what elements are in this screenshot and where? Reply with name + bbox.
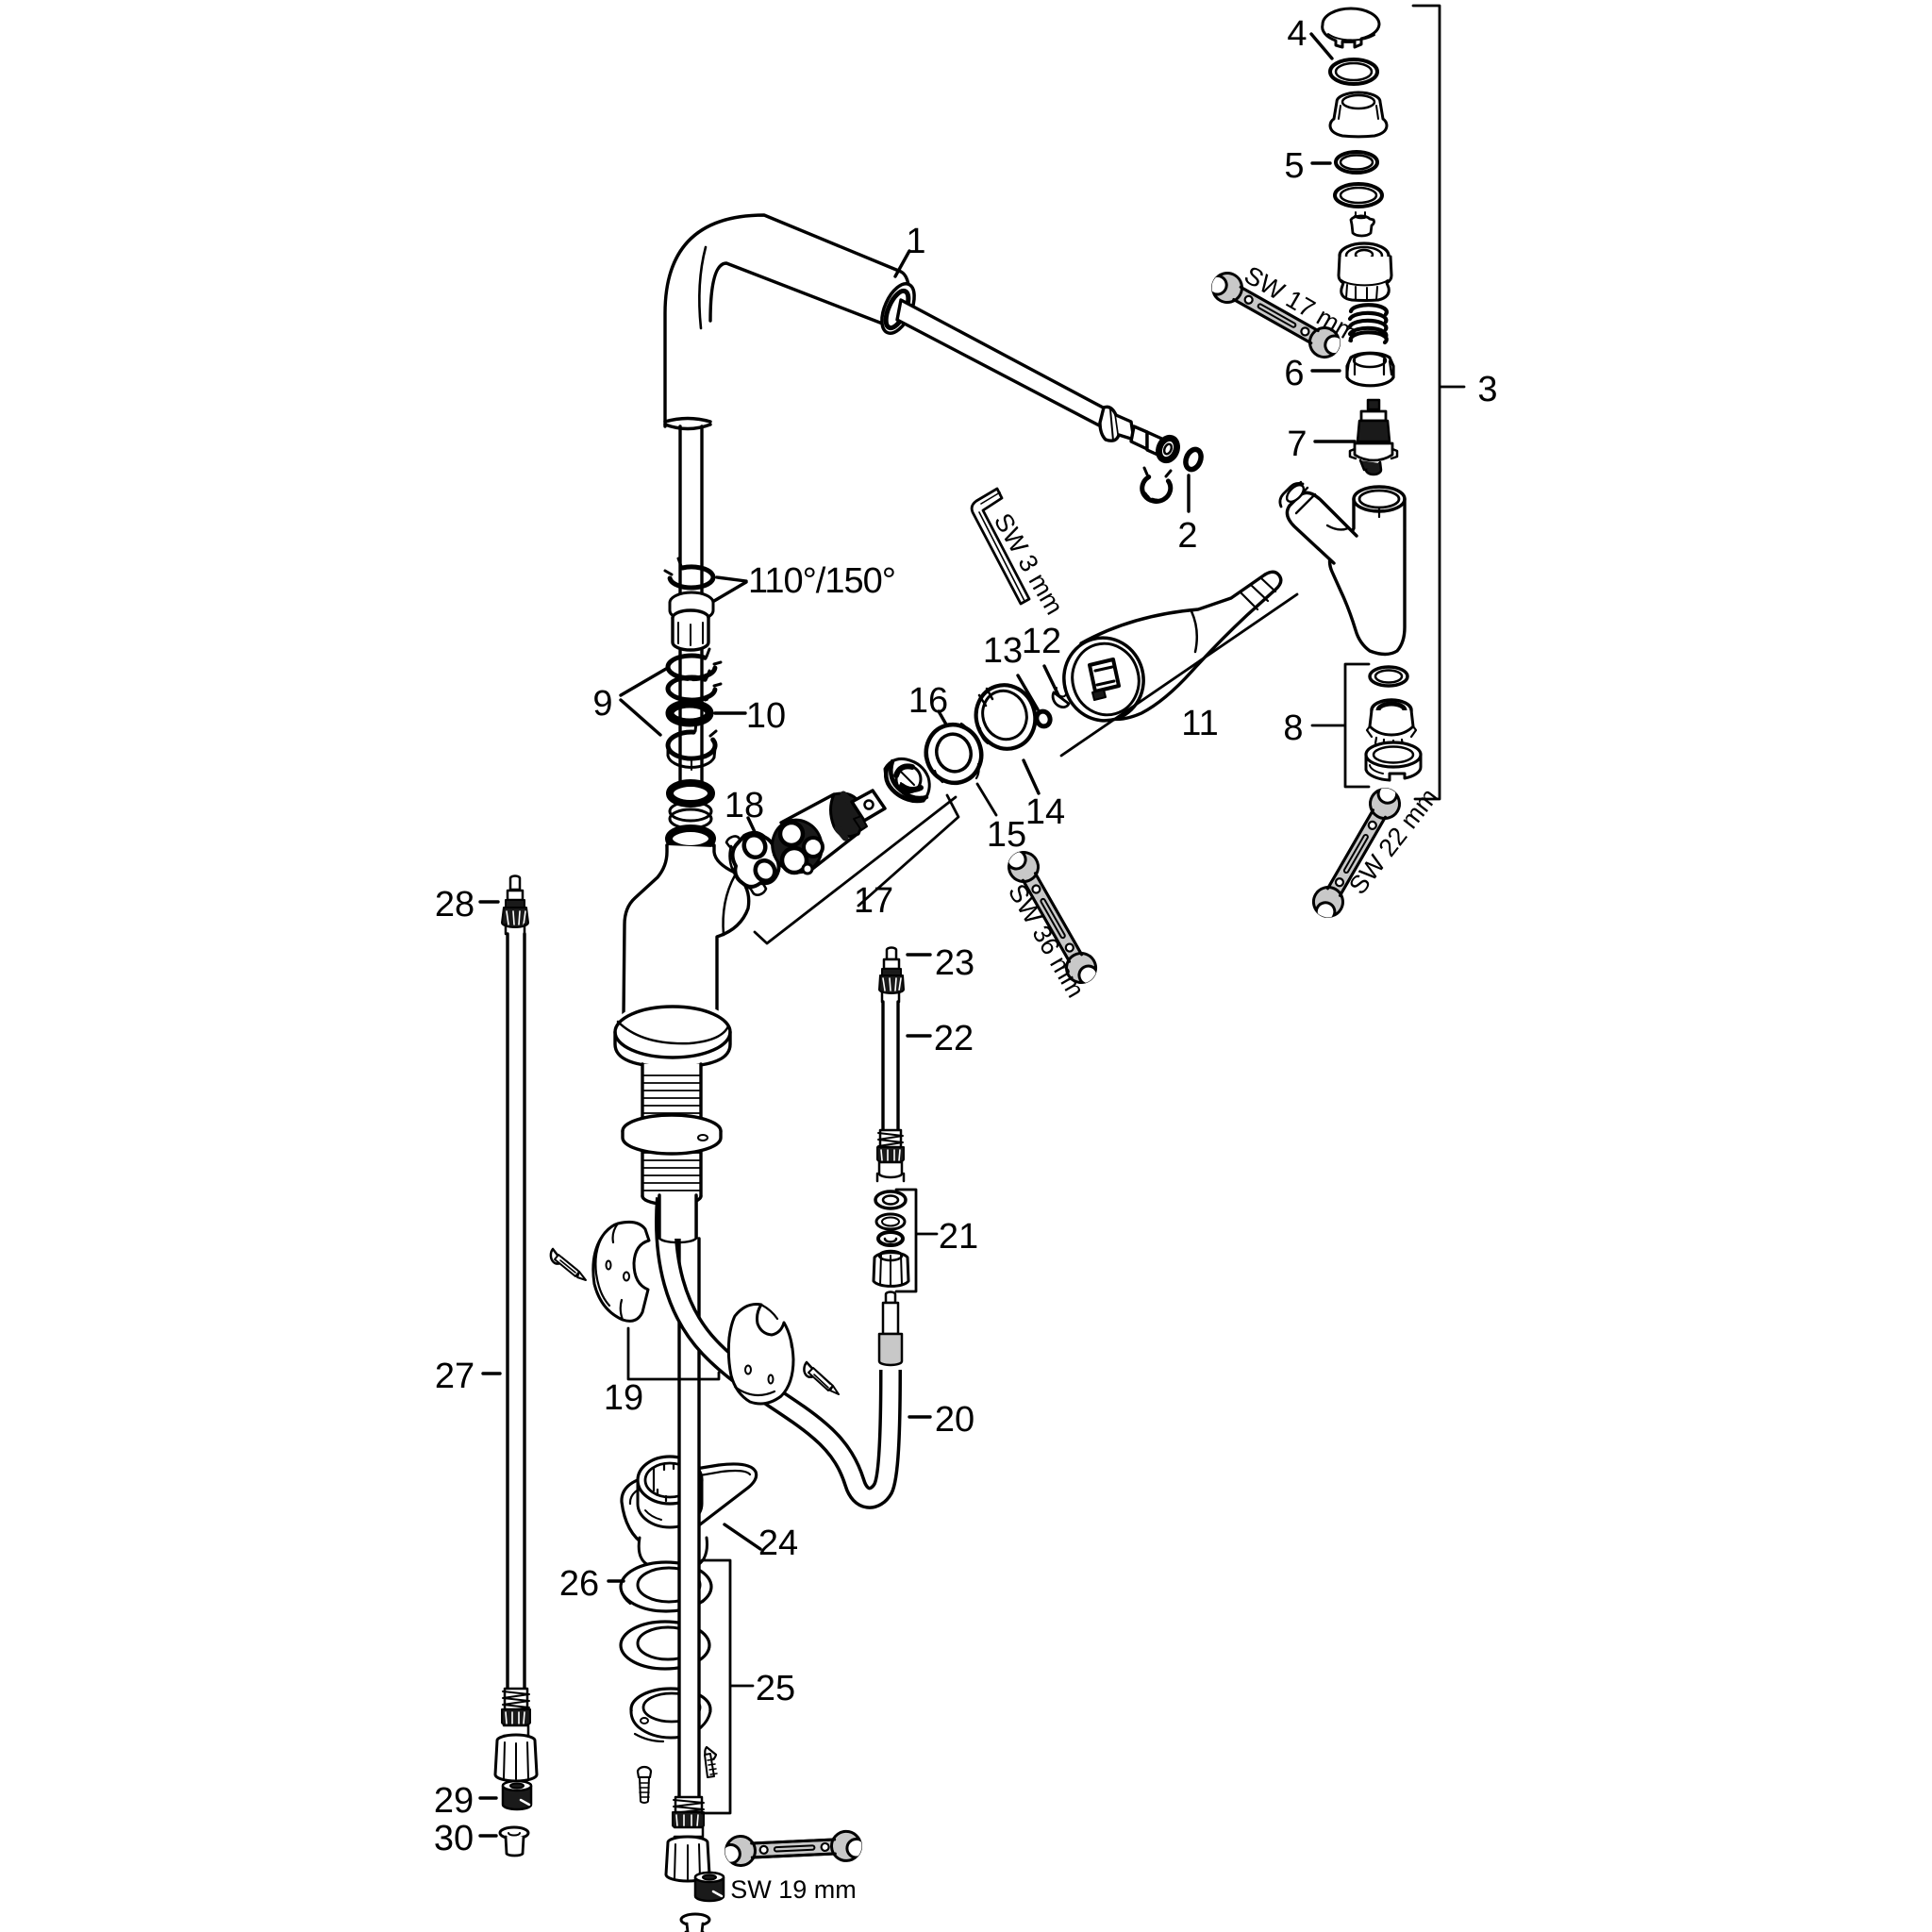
svg-text:7: 7 (1287, 425, 1307, 464)
svg-text:9: 9 (592, 684, 612, 724)
svg-text:110°/150°: 110°/150° (748, 561, 895, 601)
svg-text:3: 3 (1477, 370, 1497, 409)
svg-text:4: 4 (1287, 14, 1307, 54)
svg-text:30: 30 (434, 1819, 474, 1858)
svg-text:23: 23 (935, 943, 974, 983)
svg-text:2: 2 (1177, 516, 1197, 556)
svg-text:16: 16 (908, 681, 948, 721)
svg-text:5: 5 (1284, 146, 1304, 186)
svg-text:11: 11 (1181, 704, 1218, 743)
svg-text:18: 18 (724, 786, 764, 825)
svg-text:20: 20 (935, 1400, 974, 1440)
svg-text:6: 6 (1284, 354, 1304, 393)
svg-text:12: 12 (1022, 622, 1061, 661)
svg-text:19: 19 (604, 1378, 643, 1418)
svg-text:10: 10 (746, 696, 786, 736)
svg-text:14: 14 (1025, 792, 1065, 832)
svg-text:17: 17 (854, 881, 893, 921)
svg-text:25: 25 (756, 1669, 795, 1708)
svg-text:26: 26 (559, 1564, 599, 1604)
svg-text:15: 15 (987, 815, 1026, 855)
svg-text:24: 24 (758, 1524, 798, 1563)
svg-text:29: 29 (434, 1781, 474, 1821)
svg-text:8: 8 (1283, 708, 1303, 748)
svg-text:27: 27 (435, 1357, 475, 1396)
svg-text:13: 13 (983, 631, 1023, 671)
svg-text:21: 21 (939, 1217, 978, 1257)
svg-text:SW 19 mm: SW 19 mm (730, 1875, 857, 1904)
svg-text:22: 22 (934, 1019, 974, 1058)
svg-text:1: 1 (906, 222, 925, 261)
svg-text:28: 28 (435, 885, 475, 924)
